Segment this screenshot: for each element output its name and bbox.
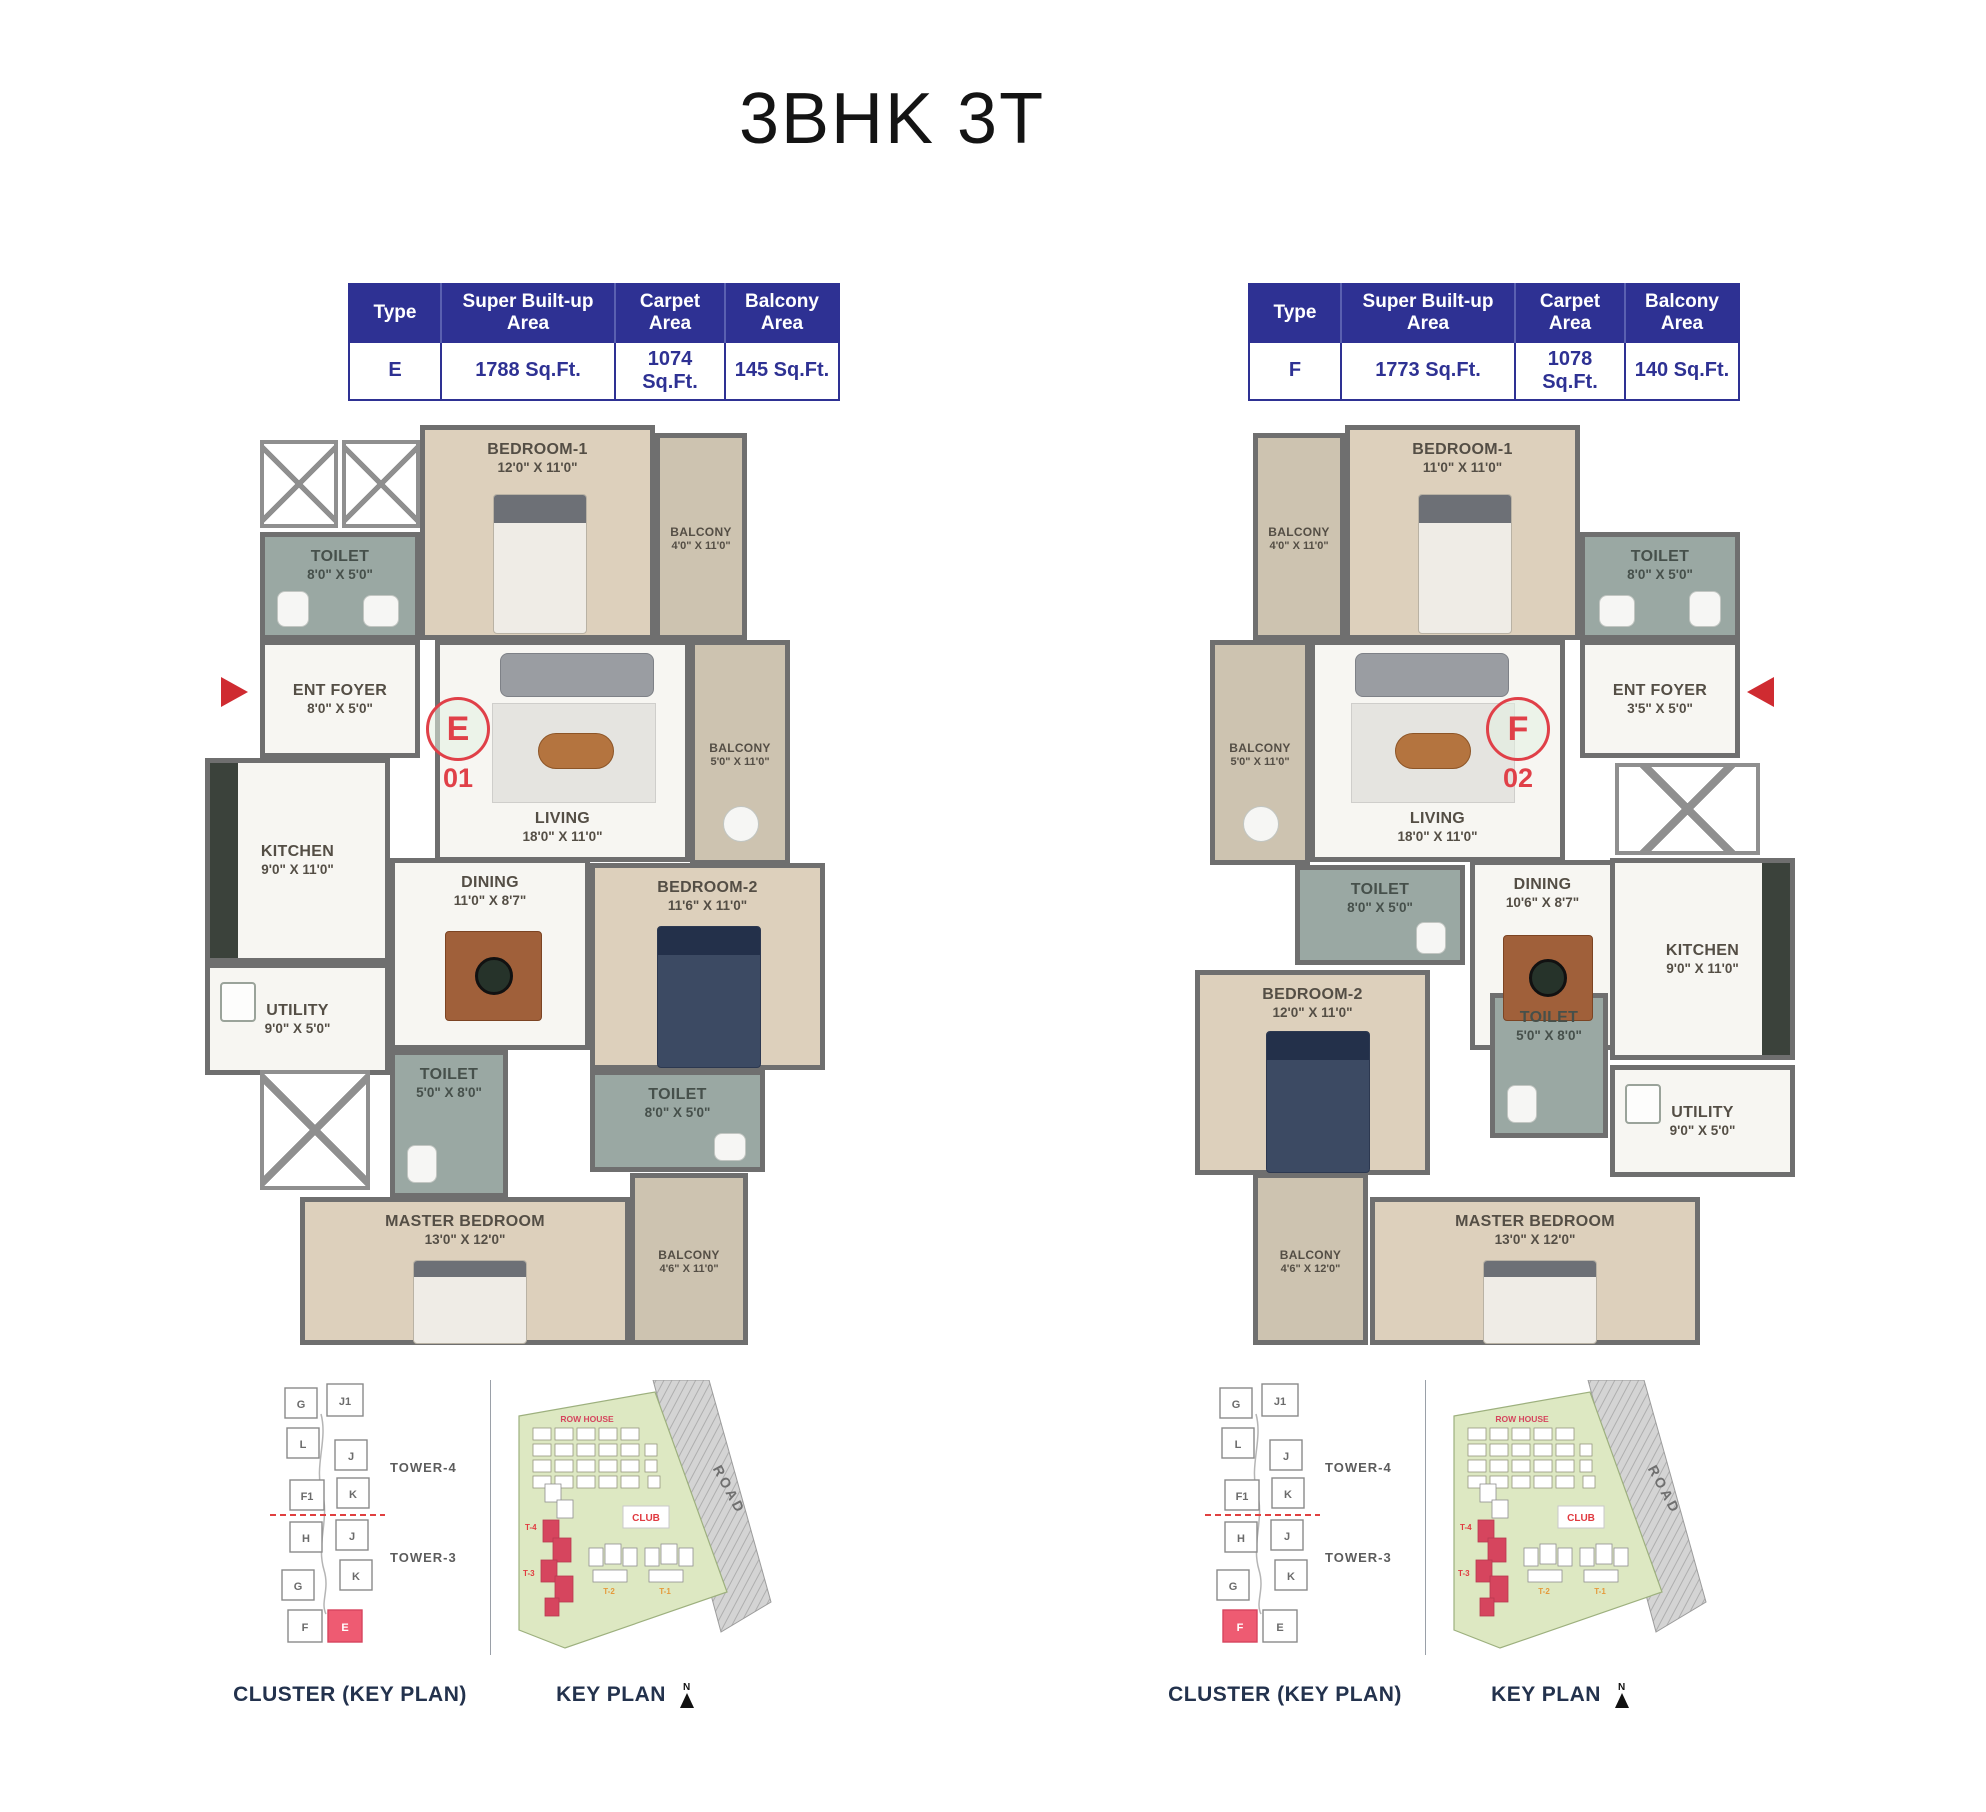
room-balcony: BALCONY 4'6" X 12'0": [1253, 1173, 1368, 1345]
svg-text:G: G: [297, 1399, 306, 1411]
planter-icon: [1243, 806, 1279, 842]
room-balcony: BALCONY 4'0" X 11'0": [655, 433, 747, 640]
toilet-fixture-icon: [1507, 1085, 1537, 1123]
col-header-balcony: Balcony Area: [1625, 284, 1739, 342]
table-row: F 1773 Sq.Ft. 1078 Sq.Ft. 140 Sq.Ft.: [1249, 342, 1739, 400]
bed-icon: [1418, 494, 1512, 634]
t3-label: T-3: [523, 1569, 535, 1578]
svg-text:K: K: [1287, 1571, 1295, 1583]
svg-text:F1: F1: [301, 1491, 314, 1503]
coffee-table-icon: [1395, 733, 1471, 769]
cell-sba: 1788 Sq.Ft.: [441, 342, 615, 400]
room-master-bedroom: MASTER BEDROOM 13'0" X 12'0": [1370, 1197, 1700, 1345]
t4-label: T-4: [1460, 1523, 1472, 1532]
cell-carpet: 1074 Sq.Ft.: [615, 342, 725, 400]
svg-text:J: J: [1284, 1531, 1290, 1543]
svg-text:J: J: [1283, 1451, 1289, 1463]
washbasin-icon: [714, 1133, 746, 1161]
svg-text:J: J: [349, 1531, 355, 1543]
club-label: CLUB: [1567, 1513, 1595, 1524]
room-toilet: TOILET 8'0" X 5'0": [1580, 532, 1740, 640]
north-arrow-icon: N: [1615, 1683, 1629, 1708]
panel-divider: [490, 1380, 491, 1655]
washbasin-icon: [1599, 595, 1635, 627]
svg-text:L: L: [1235, 1439, 1242, 1451]
panel-divider: [1425, 1380, 1426, 1655]
room-utility: UTILITY 9'0" X 5'0": [1610, 1065, 1795, 1177]
floorplan-unit-e: TOILET 8'0" X 5'0" BEDROOM-1 12'0" X 11'…: [205, 425, 825, 1345]
room-balcony: BALCONY 5'0" X 11'0": [690, 640, 790, 865]
col-header-carpet: Carpet Area: [1515, 284, 1625, 342]
unit-badge: F 02: [1483, 697, 1553, 794]
bed-icon: [493, 494, 587, 634]
room-balcony: BALCONY 4'0" X 11'0": [1253, 433, 1345, 640]
tower-3-label: TOWER-3: [1325, 1550, 1392, 1565]
svg-text:K: K: [349, 1489, 357, 1501]
coffee-table-icon: [538, 733, 614, 769]
svg-text:G: G: [294, 1581, 303, 1593]
col-header-sba: Super Built-up Area: [1341, 284, 1515, 342]
room-balcony: BALCONY 5'0" X 11'0": [1210, 640, 1310, 865]
room-bedroom-2: BEDROOM-2 12'0" X 11'0": [1195, 970, 1430, 1175]
toilet-fixture-icon: [407, 1145, 437, 1183]
room-utility: UTILITY 9'0" X 5'0": [205, 963, 390, 1075]
t4-label: T-4: [525, 1523, 537, 1532]
cell-sba: 1773 Sq.Ft.: [1341, 342, 1515, 400]
washing-machine-icon: [220, 982, 256, 1022]
tower-4-label: TOWER-4: [1325, 1460, 1392, 1475]
keyplan-caption: KEY PLANN: [495, 1683, 755, 1708]
washing-machine-icon: [1625, 1084, 1661, 1124]
sofa-icon: [1355, 653, 1509, 697]
room-bedroom-1: BEDROOM-1 11'0" X 11'0": [1345, 425, 1580, 640]
col-header-type: Type: [349, 284, 441, 342]
table-row: E 1788 Sq.Ft. 1074 Sq.Ft. 145 Sq.Ft.: [349, 342, 839, 400]
tower-3-label: TOWER-3: [390, 1550, 457, 1565]
svg-text:G: G: [1229, 1581, 1238, 1593]
unit-number-label: 01: [423, 763, 493, 794]
col-header-sba: Super Built-up Area: [441, 284, 615, 342]
svg-text:H: H: [302, 1533, 310, 1545]
svg-text:F: F: [302, 1622, 309, 1634]
lift-shaft-icon: [1615, 763, 1760, 855]
site-key-plan: ROAD ROW HOUSE CLUB T-4 T-3: [505, 1380, 775, 1665]
cluster-caption: CLUSTER (KEY PLAN): [205, 1683, 495, 1707]
col-header-balcony: Balcony Area: [725, 284, 839, 342]
cluster-key-plan: G J1 L J F1 K H J K G F E TOWER-4 TOWER-…: [1165, 1380, 1435, 1665]
room-ent-foyer: ENT FOYER 8'0" X 5'0": [260, 640, 420, 758]
room-ent-foyer: ENT FOYER 3'5" X 5'0": [1580, 640, 1740, 758]
t2-label: T-2: [603, 1587, 615, 1596]
svg-text:L: L: [300, 1439, 307, 1451]
room-balcony: BALCONY 4'6" X 11'0": [630, 1173, 748, 1345]
wardrobe-icon: [260, 1070, 370, 1190]
room-toilet: TOILET 8'0" X 5'0": [590, 1070, 765, 1172]
entry-arrow-icon: [221, 677, 248, 707]
spec-table-unit-f: Type Super Built-up Area Carpet Area Bal…: [1248, 283, 1740, 401]
room-kitchen: KITCHEN 9'0" X 11'0": [1610, 858, 1795, 1060]
cell-carpet: 1078 Sq.Ft.: [1515, 342, 1625, 400]
bed-icon: [1483, 1260, 1597, 1344]
keyplan-panel-f: G J1 L J F1 K H J K G F E TOWER-4 TOWER-…: [1140, 1380, 1740, 1720]
keyplan-caption: KEY PLANN: [1430, 1683, 1690, 1708]
north-arrow-icon: N: [680, 1683, 694, 1708]
unit-type-label: F: [1486, 697, 1550, 761]
svg-text:J1: J1: [339, 1396, 351, 1408]
cluster-key-plan: G J1 L J F1 K H J K G F E TOWER-4 TOWER-…: [230, 1380, 500, 1665]
site-key-plan: ROAD ROW HOUSE CLUB T-4 T-3: [1440, 1380, 1710, 1665]
keyplan-panel-e: G J1 L J F1 K H J K G F E TOWER-4 TOWER-…: [205, 1380, 805, 1720]
col-header-carpet: Carpet Area: [615, 284, 725, 342]
svg-text:K: K: [1284, 1489, 1292, 1501]
svg-text:G: G: [1232, 1399, 1241, 1411]
cluster-caption: CLUSTER (KEY PLAN): [1140, 1683, 1430, 1707]
dining-table-icon: [445, 931, 542, 1021]
col-header-type: Type: [1249, 284, 1341, 342]
bed-icon: [1266, 1031, 1370, 1173]
floorplan-brochure-page: 3BHK 3T Type Super Built-up Area Carpet …: [0, 0, 1986, 1812]
washbasin-icon: [363, 595, 399, 627]
floorplan-unit-f: BALCONY 4'0" X 11'0" BEDROOM-1 11'0" X 1…: [1175, 425, 1795, 1345]
page-title: 3BHK 3T: [0, 78, 1784, 160]
toilet-fixture-icon: [277, 591, 309, 627]
club-label: CLUB: [632, 1513, 660, 1524]
t1-label: T-1: [659, 1587, 671, 1596]
room-bedroom-1: BEDROOM-1 12'0" X 11'0": [420, 425, 655, 640]
cell-balcony: 145 Sq.Ft.: [725, 342, 839, 400]
bed-icon: [413, 1260, 527, 1344]
svg-text:K: K: [352, 1571, 360, 1583]
tower-4-label: TOWER-4: [390, 1460, 457, 1475]
toilet-fixture-icon: [1416, 922, 1446, 954]
svg-text:F1: F1: [1236, 1491, 1249, 1503]
cell-balcony: 140 Sq.Ft.: [1625, 342, 1739, 400]
room-toilet: TOILET 8'0" X 5'0": [1295, 865, 1465, 965]
room-toilet: TOILET 8'0" X 5'0": [260, 532, 420, 640]
kitchen-counter: [210, 763, 238, 958]
t3-label: T-3: [1458, 1569, 1470, 1578]
shaft-icon: [342, 440, 420, 528]
unit-type-label: E: [426, 697, 490, 761]
room-kitchen: KITCHEN 9'0" X 11'0": [205, 758, 390, 963]
kitchen-counter: [1762, 863, 1790, 1055]
cell-type: E: [349, 342, 441, 400]
svg-text:J: J: [348, 1451, 354, 1463]
toilet-fixture-icon: [1689, 591, 1721, 627]
planter-icon: [723, 806, 759, 842]
row-house-label: ROW HOUSE: [1495, 1414, 1549, 1424]
shaft-icon: [260, 440, 338, 528]
svg-text:E: E: [1276, 1622, 1283, 1634]
room-master-bedroom: MASTER BEDROOM 13'0" X 12'0": [300, 1197, 630, 1345]
room-bedroom-2: BEDROOM-2 11'6" X 11'0": [590, 863, 825, 1070]
unit-badge: E 01: [423, 697, 493, 794]
spec-table-unit-e: Type Super Built-up Area Carpet Area Bal…: [348, 283, 840, 401]
svg-text:J1: J1: [1274, 1396, 1286, 1408]
unit-number-label: 02: [1483, 763, 1553, 794]
room-toilet: TOILET 5'0" X 8'0": [390, 1050, 508, 1198]
cell-type: F: [1249, 342, 1341, 400]
sofa-icon: [500, 653, 654, 697]
entry-arrow-icon: [1747, 677, 1774, 707]
svg-text:F: F: [1237, 1622, 1244, 1634]
t1-label: T-1: [1594, 1587, 1606, 1596]
svg-text:H: H: [1237, 1533, 1245, 1545]
svg-text:E: E: [341, 1622, 348, 1634]
room-dining: DINING 11'0" X 8'7": [390, 858, 590, 1050]
t2-label: T-2: [1538, 1587, 1550, 1596]
bed-icon: [657, 926, 761, 1068]
row-house-label: ROW HOUSE: [560, 1414, 614, 1424]
